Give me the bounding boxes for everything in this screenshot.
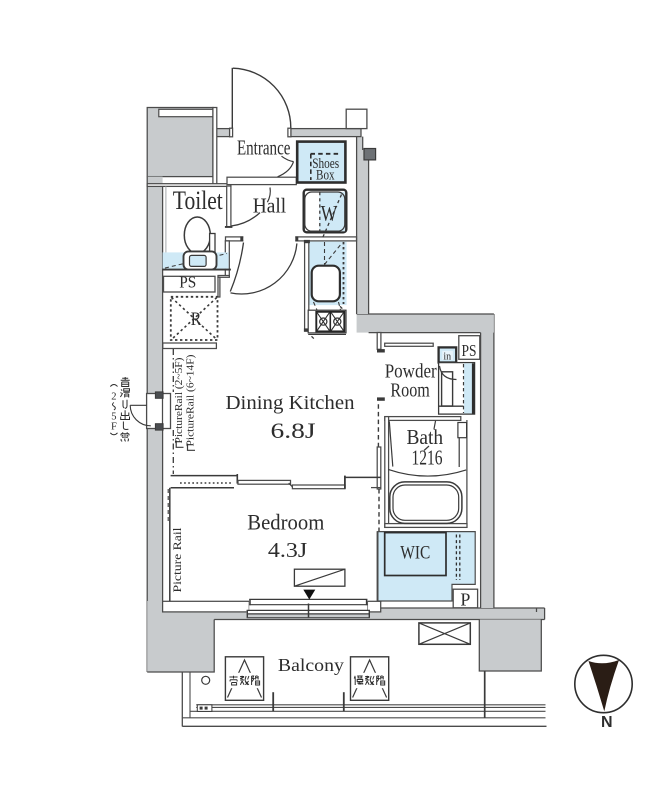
svg-text:Entrance: Entrance [237,135,291,159]
svg-text:Balcony: Balcony [278,655,344,675]
svg-text:1216: 1216 [412,446,443,470]
svg-text:Box: Box [316,168,335,184]
svg-text:W: W [321,201,338,226]
svg-text:Hall: Hall [253,193,287,217]
svg-text:Toilet: Toilet [173,186,224,215]
svg-text:Picture Rail: Picture Rail [170,527,184,593]
svg-text:WIC: WIC [400,543,430,564]
svg-text:R: R [191,309,202,330]
svg-text:PS: PS [179,273,196,292]
svg-text:P: P [460,590,470,610]
svg-text:in: in [443,352,451,363]
svg-text:Dining Kitchen: Dining Kitchen [226,392,355,414]
svg-text:4.3J: 4.3J [268,538,307,562]
svg-text:F: F [111,422,117,433]
svg-text:PictureRail (6~14F): PictureRail (6~14F) [185,354,196,447]
svg-text:Room: Room [390,380,430,402]
svg-text:N: N [601,714,613,731]
svg-text:PS: PS [462,341,477,360]
svg-text:2: 2 [111,392,116,403]
svg-text:6.8J: 6.8J [271,418,317,443]
svg-text:PictureRail (2~5F): PictureRail (2~5F) [174,357,185,444]
svg-text:Bedroom: Bedroom [247,510,324,535]
